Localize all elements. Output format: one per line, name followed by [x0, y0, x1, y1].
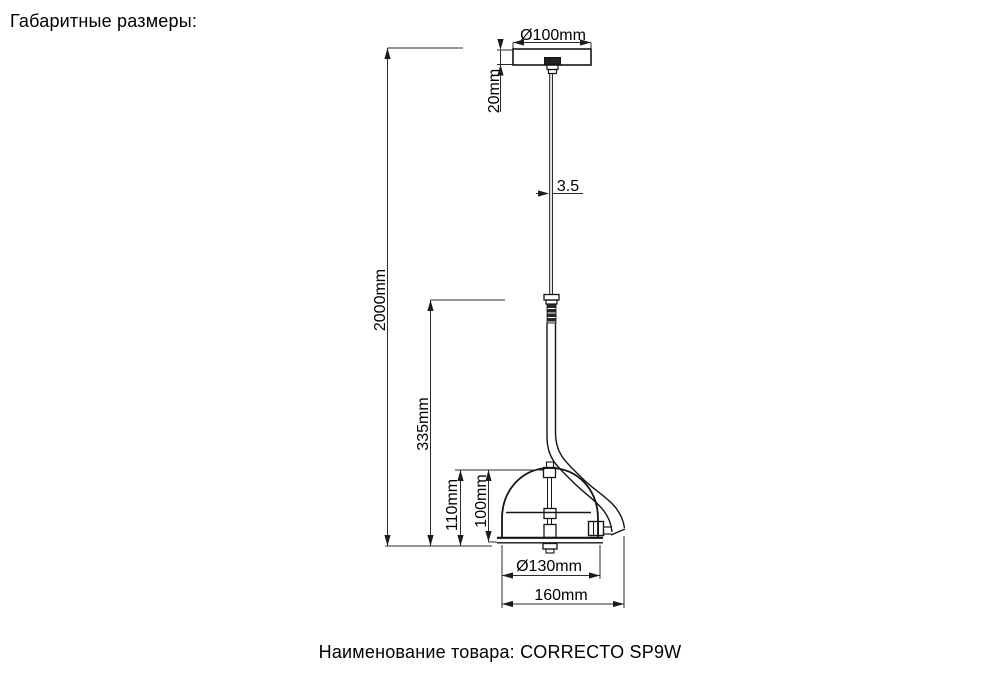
- cord-grip-fitting: [544, 295, 559, 324]
- dim-label-stem-height: 335mm: [415, 397, 432, 450]
- suspension-cord: [550, 74, 553, 295]
- dim-canopy-height: 20mm: [486, 39, 513, 113]
- dim-label-shade-outer-height: 110mm: [444, 479, 461, 531]
- dim-label-overall-width: 160mm: [534, 587, 587, 604]
- product-caption: Наименование товара: CORRECTO SP9W: [0, 642, 1000, 663]
- shade-dome: [497, 468, 604, 543]
- dim-shade-outer-height: 110mm: [444, 470, 464, 546]
- dim-extension-lines: [385, 470, 543, 546]
- dim-canopy-diameter: Ø100mm: [513, 27, 591, 49]
- dim-label-cord-diameter: 3.5: [557, 178, 579, 195]
- dim-label-suspension-height: 2000mm: [372, 269, 389, 331]
- dim-shade-inner-height: 100mm: [473, 470, 492, 542]
- dim-suspension-height: 2000mm: [372, 48, 463, 546]
- dim-label-shade-inner-height: 100mm: [473, 474, 490, 527]
- dim-cord-diameter: 3.5: [536, 178, 583, 197]
- product-name: CORRECTO SP9W: [520, 642, 681, 662]
- dim-label-shade-diameter: Ø130mm: [516, 558, 582, 575]
- lamp-holder: [506, 462, 591, 553]
- dim-label-canopy-height: 20mm: [486, 69, 503, 113]
- dimension-drawing: Ø100mm 20mm 3.5 2000mm: [0, 0, 1000, 690]
- ceiling-canopy: [513, 49, 591, 74]
- caption-label: Наименование товара:: [319, 642, 515, 662]
- stem-tube: [547, 323, 625, 535]
- drawing-page: Габаритные размеры:: [0, 0, 1000, 690]
- dim-label-canopy-diameter: Ø100mm: [520, 27, 586, 44]
